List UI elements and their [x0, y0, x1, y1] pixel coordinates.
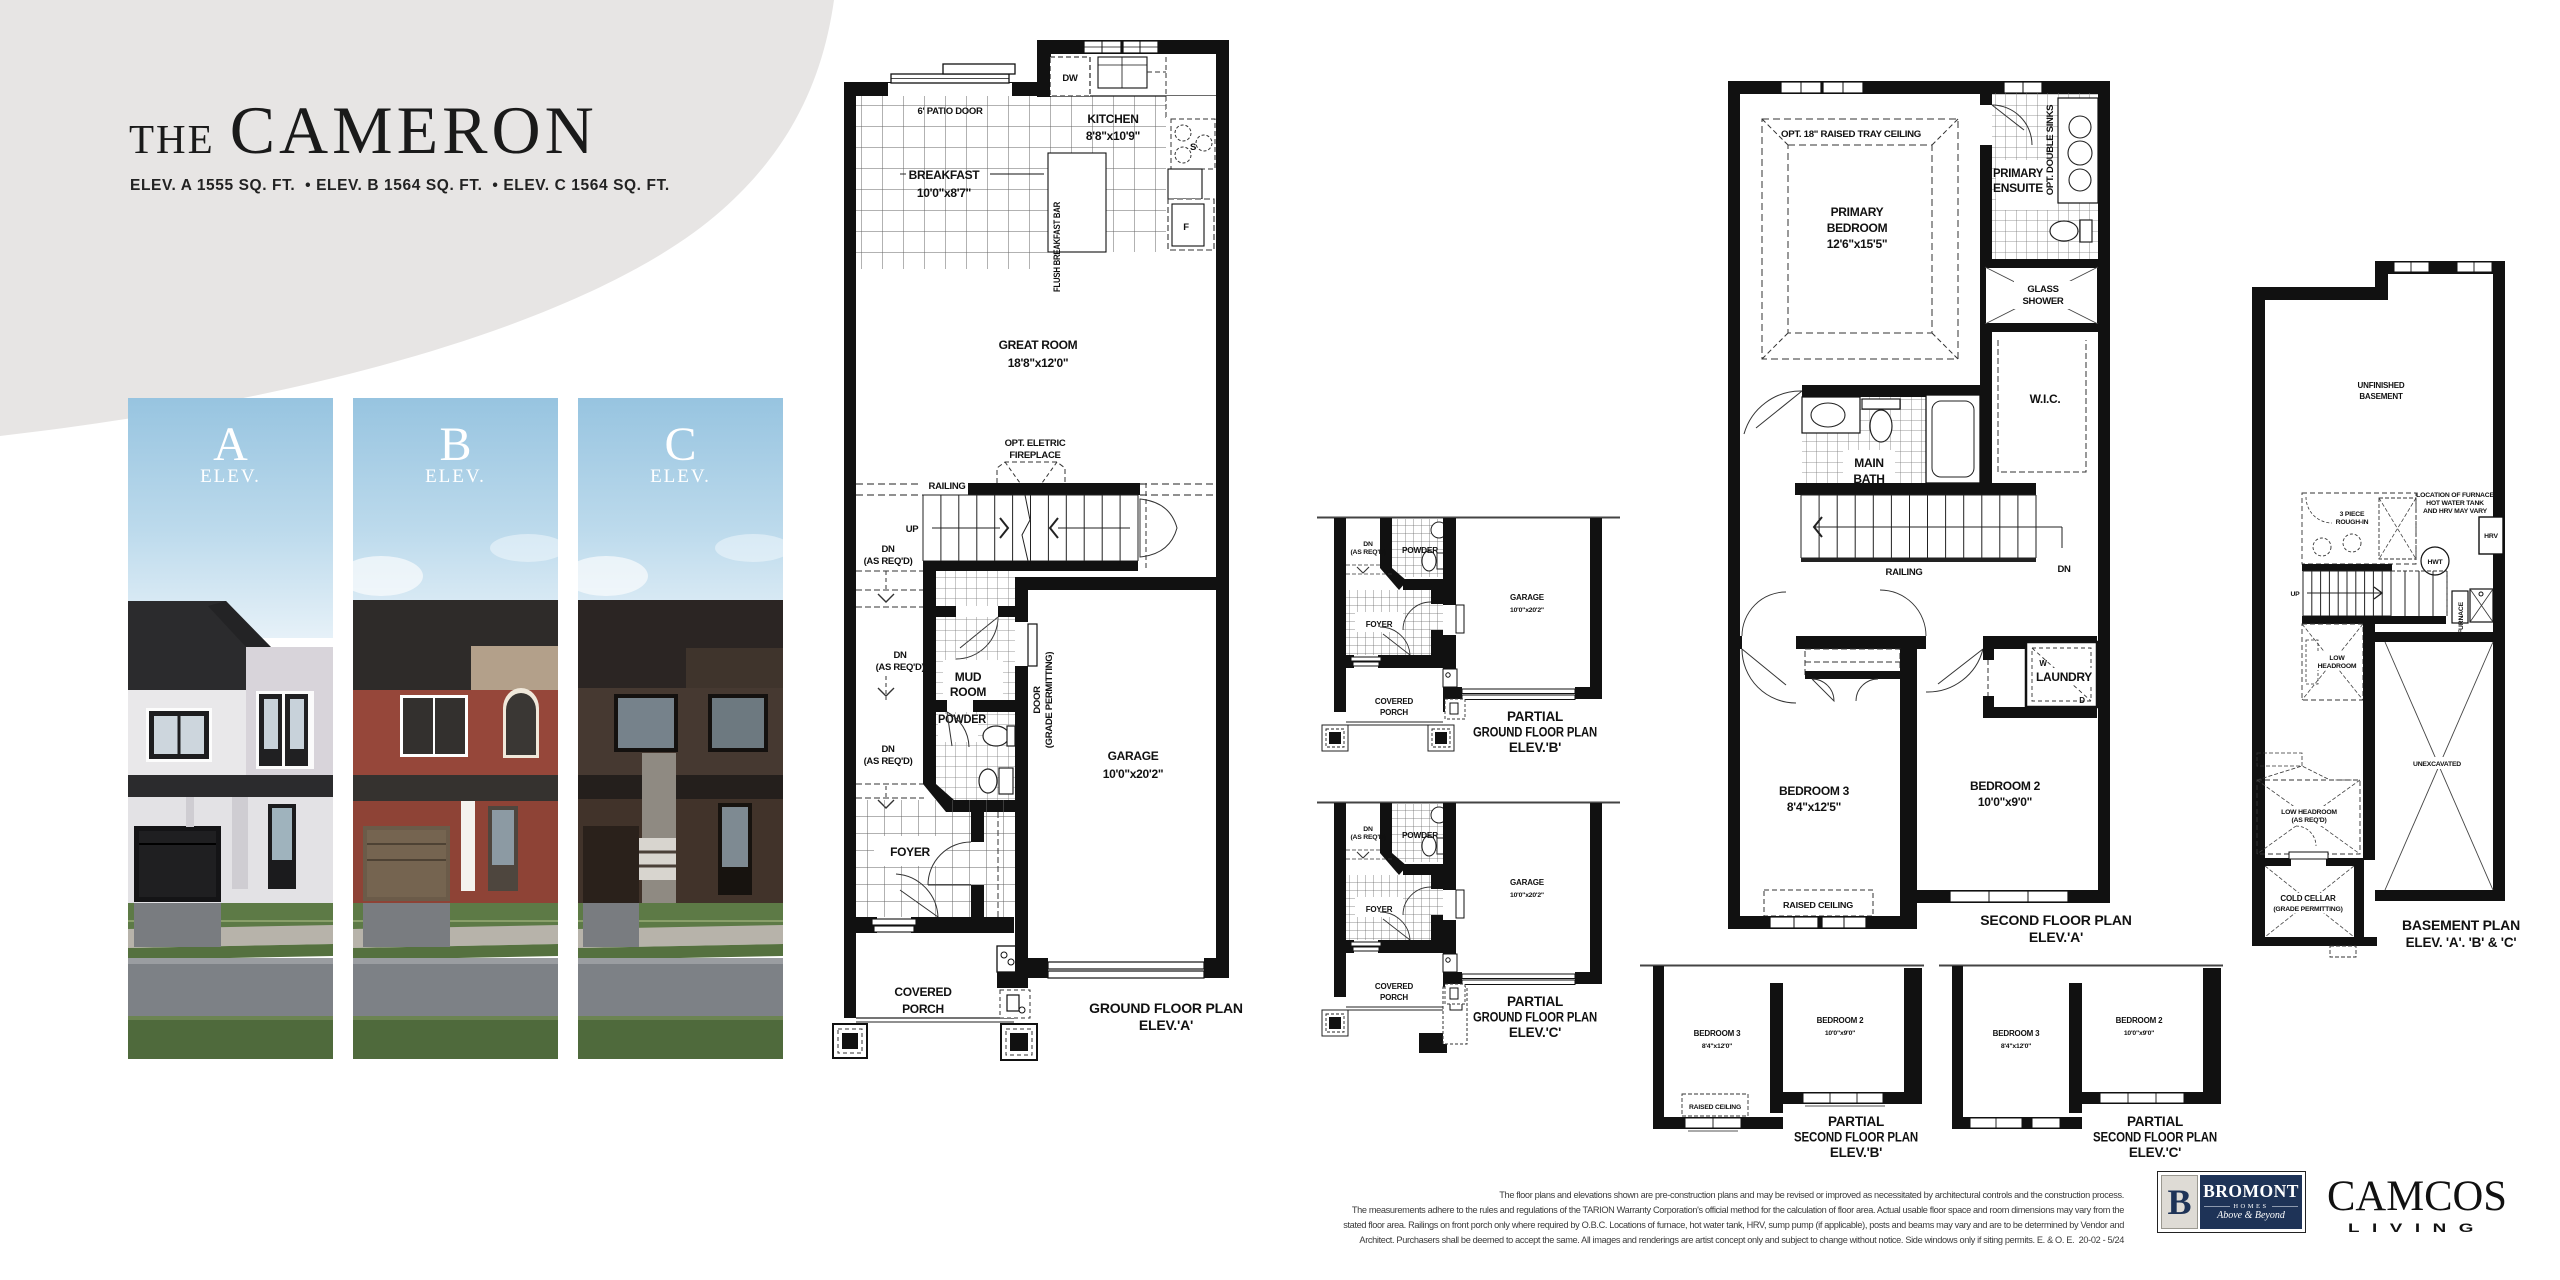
svg-text:(AS REQ'D): (AS REQ'D) — [2291, 817, 2326, 824]
svg-text:PARTIAL: PARTIAL — [1507, 709, 1563, 724]
svg-text:(AS REQ'D): (AS REQ'D) — [864, 756, 913, 767]
svg-text:UP: UP — [906, 524, 920, 535]
svg-text:GLASS: GLASS — [2027, 284, 2058, 295]
svg-text:8'4"x12'0": 8'4"x12'0" — [1702, 1043, 1732, 1050]
svg-text:HOT WATER TANK: HOT WATER TANK — [2426, 500, 2484, 507]
svg-text:18'8"x12'0": 18'8"x12'0" — [1008, 356, 1069, 370]
svg-text:10'0"x8'7": 10'0"x8'7" — [917, 186, 971, 200]
svg-text:(AS REQ'D): (AS REQ'D) — [876, 662, 925, 673]
svg-text:FOYER: FOYER — [1366, 905, 1393, 914]
svg-text:RAILING: RAILING — [929, 481, 966, 492]
svg-text:8'8"x10'9": 8'8"x10'9" — [1086, 129, 1140, 143]
svg-text:PARTIAL: PARTIAL — [2127, 1114, 2183, 1129]
svg-text:(GRADE PERMITTING): (GRADE PERMITTING) — [2273, 906, 2342, 913]
svg-text:LOW HEADROOM: LOW HEADROOM — [2281, 809, 2337, 816]
svg-text:FLUSH BREAKFAST BAR: FLUSH BREAKFAST BAR — [1052, 202, 1063, 292]
svg-text:3 PIECE: 3 PIECE — [2340, 511, 2365, 518]
svg-text:DN: DN — [881, 544, 895, 555]
svg-text:10'0"x20'2": 10'0"x20'2" — [1103, 767, 1164, 781]
svg-text:GROUND FLOOR PLAN: GROUND FLOOR PLAN — [1089, 1000, 1243, 1016]
svg-text:BEDROOM 2: BEDROOM 2 — [1970, 779, 2041, 793]
svg-text:ELEV.'B': ELEV.'B' — [1830, 1145, 1882, 1160]
svg-text:(AS REQ'D): (AS REQ'D) — [864, 556, 913, 567]
svg-text:GROUND FLOOR PLAN: GROUND FLOOR PLAN — [1473, 725, 1597, 740]
svg-text:DOOR: DOOR — [1032, 686, 1043, 714]
svg-text:PORCH: PORCH — [1380, 708, 1408, 717]
svg-text:ELEV.'C': ELEV.'C' — [2129, 1145, 2181, 1160]
svg-text:FOYER: FOYER — [1366, 620, 1393, 629]
svg-text:6' PATIO DOOR: 6' PATIO DOOR — [917, 106, 982, 117]
svg-text:COLD CELLAR: COLD CELLAR — [2280, 894, 2336, 903]
svg-text:10'0"x9'0": 10'0"x9'0" — [1825, 1030, 1855, 1037]
svg-text:PARTIAL: PARTIAL — [1828, 1114, 1884, 1129]
svg-text:RAISED CEILING: RAISED CEILING — [1689, 1104, 1741, 1111]
svg-text:FOYER: FOYER — [890, 845, 930, 859]
svg-text:ELEV.'A': ELEV.'A' — [2029, 929, 2083, 945]
svg-text:DN: DN — [2057, 564, 2071, 575]
svg-text:BASEMENT PLAN: BASEMENT PLAN — [2402, 917, 2520, 933]
svg-text:W: W — [2039, 659, 2047, 668]
svg-text:BEDROOM 3: BEDROOM 3 — [1779, 784, 1850, 798]
svg-text:BEDROOM 2: BEDROOM 2 — [2116, 1016, 2163, 1025]
svg-text:COVERED: COVERED — [894, 985, 952, 999]
svg-text:S: S — [1190, 142, 1196, 153]
svg-text:GARAGE: GARAGE — [1108, 749, 1159, 763]
svg-text:F: F — [1183, 222, 1189, 233]
svg-text:DW: DW — [1062, 73, 1078, 84]
svg-text:ROOM: ROOM — [950, 685, 986, 699]
svg-text:(AS REQ'D): (AS REQ'D) — [1350, 549, 1385, 556]
svg-text:LIVING: LIVING — [2348, 1221, 2486, 1235]
svg-text:SHOWER: SHOWER — [2023, 296, 2064, 307]
svg-text:POWDER: POWDER — [938, 712, 987, 726]
svg-text:10'0"x20'2": 10'0"x20'2" — [1510, 892, 1544, 899]
svg-text:DN: DN — [1363, 826, 1373, 833]
svg-text:10'0"x9'0": 10'0"x9'0" — [2124, 1030, 2154, 1037]
svg-text:MAIN: MAIN — [1854, 456, 1883, 470]
svg-text:ELEV.'B': ELEV.'B' — [1509, 740, 1561, 755]
svg-text:GROUND FLOOR PLAN: GROUND FLOOR PLAN — [1473, 1010, 1597, 1025]
svg-text:PORCH: PORCH — [902, 1002, 944, 1016]
svg-text:12'6"x15'5": 12'6"x15'5" — [1827, 237, 1888, 251]
svg-text:LOW: LOW — [2329, 655, 2345, 662]
svg-text:PRIMARY: PRIMARY — [1831, 205, 1884, 219]
svg-text:ELEV.'A': ELEV.'A' — [1139, 1017, 1193, 1033]
svg-text:GREAT ROOM: GREAT ROOM — [999, 338, 1078, 352]
svg-text:10'0"x9'0": 10'0"x9'0" — [1978, 795, 2032, 809]
svg-text:BEDROOM: BEDROOM — [1827, 221, 1888, 235]
svg-text:ELEV.'C': ELEV.'C' — [1509, 1025, 1561, 1040]
svg-text:CAMCOS: CAMCOS — [2327, 1173, 2507, 1220]
svg-text:FIREPLACE: FIREPLACE — [1009, 450, 1060, 461]
svg-text:OPT. DOUBLE SINKS: OPT. DOUBLE SINKS — [2045, 105, 2056, 195]
svg-text:RAILING: RAILING — [1886, 567, 1923, 578]
svg-text:GARAGE: GARAGE — [1510, 878, 1545, 887]
svg-text:BEDROOM 3: BEDROOM 3 — [1993, 1029, 2040, 1038]
svg-text:PORCH: PORCH — [1380, 993, 1408, 1002]
svg-text:ROUGH-IN: ROUGH-IN — [2336, 519, 2369, 526]
svg-text:D: D — [2079, 696, 2085, 705]
svg-text:COVERED: COVERED — [1375, 982, 1414, 991]
svg-text:POWDER: POWDER — [1402, 546, 1438, 555]
svg-text:SECOND FLOOR PLAN: SECOND FLOOR PLAN — [1980, 912, 2131, 928]
svg-text:AND HRV MAY VARY: AND HRV MAY VARY — [2423, 508, 2488, 515]
svg-text:POWDER: POWDER — [1402, 831, 1438, 840]
svg-text:COVERED: COVERED — [1375, 697, 1414, 706]
svg-text:OPT. 18" RAISED TRAY CEILING: OPT. 18" RAISED TRAY CEILING — [1781, 129, 1921, 140]
svg-text:BASEMENT: BASEMENT — [2359, 392, 2403, 401]
svg-text:(GRADE PERMITTING): (GRADE PERMITTING) — [1044, 652, 1055, 749]
svg-text:HEADROOM: HEADROOM — [2318, 663, 2357, 670]
svg-text:DN: DN — [881, 744, 895, 755]
svg-text:ELEV. 'A'. 'B' & 'C': ELEV. 'A'. 'B' & 'C' — [2406, 935, 2517, 950]
svg-text:LAUNDRY: LAUNDRY — [2036, 670, 2092, 684]
svg-text:UNEXCAVATED: UNEXCAVATED — [2413, 761, 2461, 768]
svg-text:(AS REQ'D): (AS REQ'D) — [1350, 834, 1385, 841]
svg-text:FURNACE: FURNACE — [2458, 601, 2465, 633]
svg-text:BREAKFAST: BREAKFAST — [909, 168, 981, 182]
svg-text:HRV: HRV — [2484, 533, 2498, 540]
svg-text:DN: DN — [893, 650, 907, 661]
svg-text:UNFINISHED: UNFINISHED — [2358, 381, 2405, 390]
svg-text:HWT: HWT — [2428, 559, 2444, 566]
svg-text:8'4"x12'5": 8'4"x12'5" — [1787, 800, 1841, 814]
svg-text:UP: UP — [2290, 591, 2300, 598]
svg-text:8'4"x12'0": 8'4"x12'0" — [2001, 1043, 2031, 1050]
svg-text:RAISED CEILING: RAISED CEILING — [1783, 901, 1853, 910]
svg-text:SECOND FLOOR PLAN: SECOND FLOOR PLAN — [1794, 1130, 1918, 1145]
svg-text:KITCHEN: KITCHEN — [1087, 112, 1138, 126]
svg-text:LOCATION OF FURNACE: LOCATION OF FURNACE — [2416, 492, 2494, 499]
svg-text:ENSUITE: ENSUITE — [1993, 181, 2043, 195]
svg-text:10'0"x20'2": 10'0"x20'2" — [1510, 607, 1544, 614]
svg-text:MUD: MUD — [955, 670, 982, 684]
svg-text:SECOND FLOOR PLAN: SECOND FLOOR PLAN — [2093, 1130, 2217, 1145]
svg-text:W.I.C.: W.I.C. — [2030, 392, 2061, 406]
svg-text:BEDROOM 3: BEDROOM 3 — [1694, 1029, 1741, 1038]
svg-text:PARTIAL: PARTIAL — [1507, 994, 1563, 1009]
svg-text:BEDROOM 2: BEDROOM 2 — [1817, 1016, 1864, 1025]
svg-text:OPT. ELETRIC: OPT. ELETRIC — [1005, 438, 1066, 449]
svg-text:PRIMARY: PRIMARY — [1993, 166, 2043, 180]
svg-text:DN: DN — [1363, 541, 1373, 548]
svg-text:GARAGE: GARAGE — [1510, 593, 1545, 602]
